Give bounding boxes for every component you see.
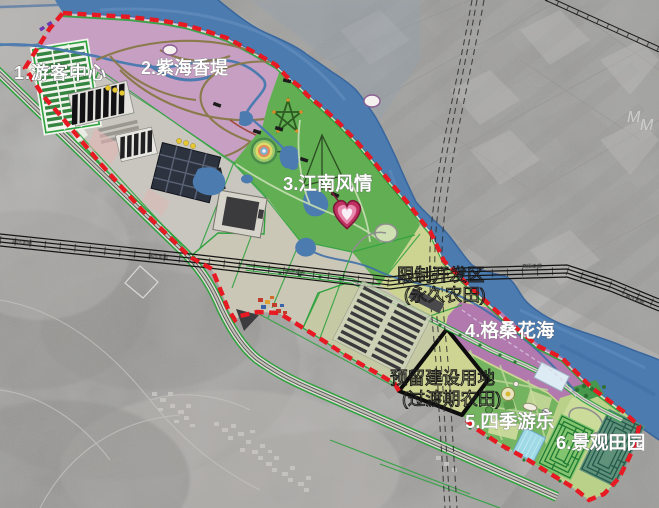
- svg-text:5.四季游乐: 5.四季游乐: [465, 411, 555, 432]
- svg-text:限制开发区: 限制开发区: [397, 265, 485, 285]
- svg-text:M: M: [640, 117, 654, 134]
- svg-text:6.景观田园: 6.景观田园: [556, 432, 645, 453]
- svg-text:2.紫海香堤: 2.紫海香堤: [141, 57, 229, 78]
- svg-text:1.游客中心: 1.游客中心: [14, 62, 107, 83]
- svg-text:3.江南风情: 3.江南风情: [283, 173, 373, 194]
- svg-text:(永久农田): (永久农田): [404, 285, 486, 305]
- svg-text:预留建设用地: 预留建设用地: [390, 368, 495, 388]
- svg-text:(过渡期农田): (过渡期农田): [402, 389, 501, 409]
- svg-text:4.格桑花海: 4.格桑花海: [465, 320, 555, 341]
- svg-text:M: M: [627, 109, 641, 126]
- svg-text:高压走廊: 高压走廊: [522, 263, 542, 270]
